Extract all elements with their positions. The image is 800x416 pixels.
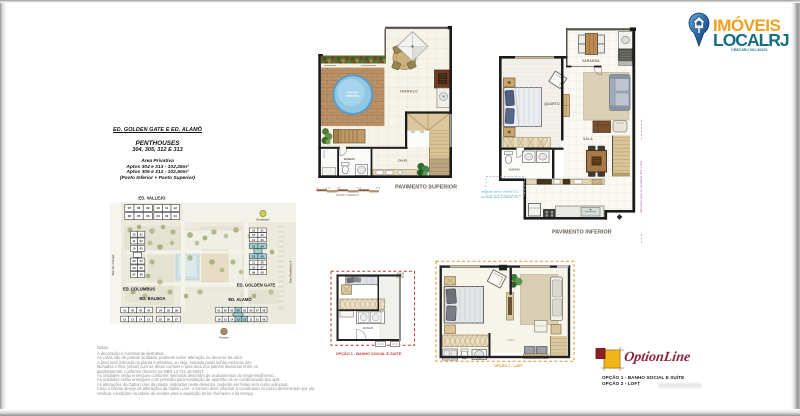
- svg-text:14: 14: [230, 317, 233, 321]
- svg-text:06: 06: [250, 308, 253, 312]
- svg-text:01: 01: [140, 232, 144, 236]
- svg-text:02: 02: [140, 239, 144, 243]
- svg-text:12: 12: [123, 317, 127, 321]
- svg-text:11: 11: [252, 261, 255, 265]
- svg-text:BANHO: BANHO: [509, 168, 520, 172]
- svg-text:12: 12: [243, 317, 246, 321]
- svg-text:10: 10: [252, 265, 255, 269]
- svg-text:02: 02: [165, 214, 169, 218]
- svg-text:07: 07: [128, 206, 132, 210]
- svg-text:PRIVATIVA: PRIVATIVA: [346, 94, 360, 98]
- svg-text:04: 04: [146, 214, 150, 218]
- svg-text:4.50: 4.50: [376, 187, 381, 189]
- svg-text:35: 35: [167, 308, 171, 312]
- svg-text:03: 03: [230, 308, 233, 312]
- svg-text:02: 02: [261, 233, 264, 237]
- svg-text:11: 11: [133, 239, 136, 243]
- svg-text:12: 12: [252, 255, 255, 259]
- svg-text:09: 09: [132, 259, 136, 263]
- svg-text:13: 13: [237, 317, 240, 321]
- svg-text:03: 03: [140, 247, 144, 251]
- svg-text:27: 27: [175, 317, 179, 321]
- svg-text:12: 12: [174, 206, 178, 210]
- svg-text:34: 34: [159, 308, 163, 312]
- svg-text:07: 07: [261, 265, 264, 269]
- svg-text:08: 08: [262, 308, 265, 312]
- svg-text:10: 10: [256, 317, 259, 321]
- svg-text:OPÇÃO 1 - BANHO SOCIAL E SUÍTE: OPÇÃO 1 - BANHO SOCIAL E SUÍTE: [336, 351, 402, 356]
- svg-text:Rua Prefeitura 4: Rua Prefeitura 4: [289, 261, 293, 284]
- svg-text:12: 12: [132, 232, 136, 236]
- svg-text:ED. GOLDEN GATE: ED. GOLDEN GATE: [237, 283, 276, 288]
- svg-text:05: 05: [137, 214, 141, 218]
- svg-text:08: 08: [137, 206, 141, 210]
- svg-text:13: 13: [131, 317, 135, 321]
- svg-text:04: 04: [237, 308, 240, 312]
- svg-text:14: 14: [252, 238, 255, 242]
- svg-text:15: 15: [252, 233, 255, 237]
- svg-text:CHUR.: CHUR.: [398, 159, 408, 163]
- svg-text:1.50: 1.50: [336, 187, 341, 189]
- svg-text:16: 16: [252, 229, 255, 233]
- svg-text:PAVIMENTO INFERIOR: PAVIMENTO INFERIOR: [552, 230, 612, 236]
- svg-text:BANHO: BANHO: [344, 157, 355, 161]
- svg-text:07: 07: [256, 308, 259, 312]
- svg-text:TERRAÇO: TERRAÇO: [400, 89, 419, 93]
- svg-text:26: 26: [167, 317, 171, 321]
- svg-text:11: 11: [165, 206, 169, 210]
- svg-text:09: 09: [252, 270, 255, 274]
- svg-text:08: 08: [132, 266, 136, 270]
- svg-text:Rua Dr. Crespo: Rua Dr. Crespo: [111, 254, 115, 275]
- svg-text:SALA: SALA: [583, 137, 593, 141]
- svg-text:VARANDA: VARANDA: [582, 59, 600, 63]
- svg-text:10: 10: [156, 206, 160, 210]
- svg-text:05: 05: [261, 255, 264, 259]
- svg-text:0.0: 0.0: [315, 187, 319, 189]
- svg-text:43: 43: [139, 308, 143, 312]
- svg-text:08: 08: [261, 270, 264, 274]
- svg-text:42: 42: [131, 308, 135, 312]
- svg-text:05: 05: [243, 308, 246, 312]
- svg-text:36: 36: [175, 308, 179, 312]
- svg-text:04: 04: [140, 259, 144, 263]
- svg-text:16: 16: [218, 317, 221, 321]
- svg-text:10: 10: [132, 247, 136, 251]
- svg-text:ED. ALAMÔ: ED. ALAMÔ: [228, 297, 252, 302]
- svg-text:06: 06: [261, 261, 264, 265]
- svg-text:09: 09: [146, 206, 150, 210]
- svg-text:44: 44: [147, 308, 151, 312]
- svg-text:LOFT: LOFT: [507, 338, 515, 342]
- svg-text:07: 07: [132, 273, 136, 277]
- svg-text:3.00: 3.00: [357, 187, 362, 189]
- svg-text:ESCALA GRÁFICA: ESCALA GRÁFICA: [336, 193, 359, 197]
- svg-text:alteração para a unidade 313: alteração para a unidade 313: [481, 195, 519, 199]
- svg-text:41: 41: [123, 308, 127, 312]
- svg-text:14: 14: [139, 317, 143, 321]
- svg-text:06: 06: [128, 214, 132, 218]
- svg-text:ED. VALLEJO: ED. VALLEJO: [138, 195, 166, 200]
- svg-text:02: 02: [224, 308, 227, 312]
- svg-text:03: 03: [156, 214, 160, 218]
- svg-text:01: 01: [174, 214, 178, 218]
- svg-text:alteração para as unidades 312: alteração para as unidades 312 e 313: [639, 161, 643, 213]
- svg-text:15: 15: [147, 317, 151, 321]
- svg-text:15: 15: [224, 317, 227, 321]
- svg-text:01: 01: [218, 308, 221, 312]
- svg-text:alteração para a unidade 312: alteração para a unidade 312: [481, 190, 519, 194]
- svg-text:ED. COLUMBUS: ED. COLUMBUS: [123, 287, 156, 292]
- svg-text:0.75: 0.75: [326, 187, 331, 189]
- svg-text:BANHO: BANHO: [363, 326, 374, 330]
- svg-text:Bicicletário: Bicicletário: [257, 218, 270, 221]
- svg-text:PAVIMENTO SUPERIOR: PAVIMENTO SUPERIOR: [395, 185, 457, 191]
- svg-text:Portaria: Portaria: [219, 337, 229, 340]
- svg-text:04: 04: [261, 244, 264, 248]
- svg-text:ED. BALBOA: ED. BALBOA: [139, 296, 165, 301]
- svg-text:13: 13: [252, 244, 255, 248]
- svg-text:06: 06: [140, 273, 144, 277]
- svg-text:01: 01: [261, 229, 264, 233]
- svg-text:09: 09: [262, 317, 265, 321]
- svg-text:PISCINA: PISCINA: [347, 91, 358, 95]
- svg-text:QUARTO: QUARTO: [544, 102, 560, 106]
- svg-text:03: 03: [261, 238, 264, 242]
- svg-text:25: 25: [159, 317, 163, 321]
- svg-text:05: 05: [140, 266, 144, 270]
- svg-text:OPÇÃO 2 - LOFT: OPÇÃO 2 - LOFT: [494, 363, 524, 368]
